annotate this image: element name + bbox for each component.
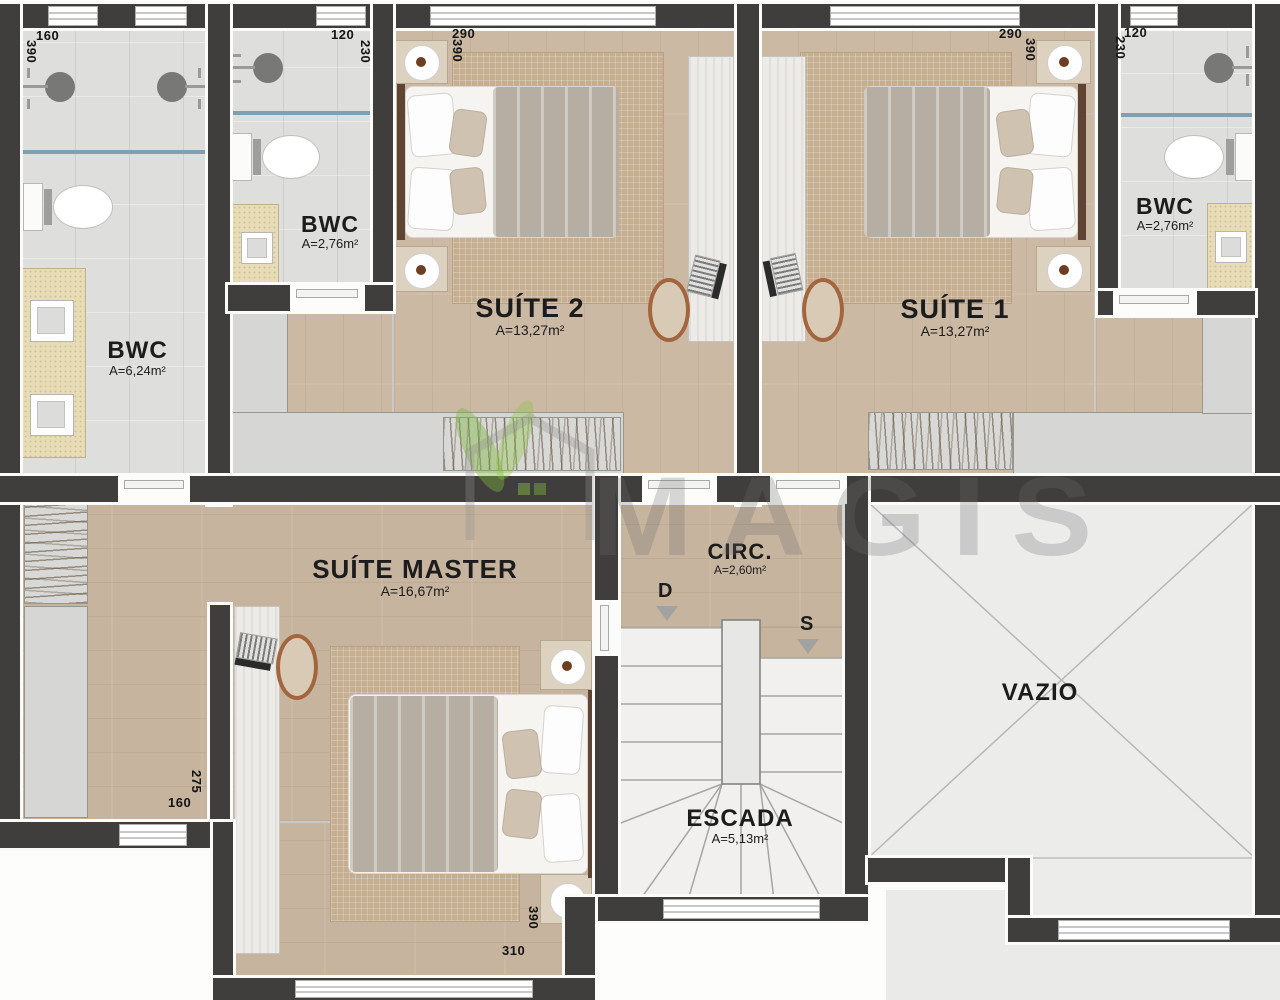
door-bwc-suite2 bbox=[290, 283, 365, 313]
dim-bwc-main-height: 390 bbox=[25, 40, 38, 63]
wall bbox=[0, 822, 233, 848]
window bbox=[1130, 6, 1178, 26]
window bbox=[135, 6, 187, 26]
wardrobe-suite1-side bbox=[1202, 316, 1255, 414]
shower-glass-divider bbox=[231, 111, 373, 115]
sink bbox=[30, 300, 74, 342]
window bbox=[48, 6, 98, 26]
bed-suite2 bbox=[397, 84, 621, 240]
room-name: ESCADA bbox=[660, 806, 820, 831]
dim-suite2-height: 390 bbox=[451, 39, 464, 62]
wall bbox=[213, 822, 233, 1000]
room-area: A=13,27m² bbox=[845, 323, 1065, 339]
window bbox=[119, 824, 187, 846]
lamp-icon bbox=[550, 649, 586, 685]
wall bbox=[737, 4, 759, 504]
wall bbox=[210, 605, 230, 840]
lamp-icon bbox=[404, 253, 440, 289]
shower-glass-divider bbox=[22, 150, 208, 154]
room-label-suite2: SUÍTE 2 A=13,27m² bbox=[420, 294, 640, 338]
room-area: A=6,24m² bbox=[60, 363, 215, 378]
dim-master-width: 310 bbox=[502, 944, 525, 957]
window bbox=[295, 980, 533, 998]
room-label-bwc-suite1: BWC A=2,76m² bbox=[1105, 194, 1225, 233]
wall bbox=[1255, 4, 1280, 942]
window bbox=[316, 6, 366, 26]
wall bbox=[868, 858, 1030, 882]
shower-arm-icon bbox=[1232, 66, 1254, 69]
room-label-bwc-suite2: BWC A=2,76m² bbox=[270, 212, 390, 251]
shower-glass-divider bbox=[1118, 113, 1255, 117]
desk-suite1 bbox=[760, 56, 806, 342]
chair-suite2 bbox=[648, 278, 690, 342]
shower-valve-icon bbox=[231, 54, 241, 57]
bed-suite1 bbox=[862, 84, 1086, 240]
room-name: SUÍTE 2 bbox=[420, 294, 640, 322]
room-area: A=5,13m² bbox=[660, 831, 820, 846]
stairs-down-arrow-icon bbox=[656, 606, 678, 621]
dim-master-nook-width: 160 bbox=[168, 796, 191, 809]
nightstand bbox=[393, 40, 448, 84]
dim-master-nook-height: 275 bbox=[190, 770, 203, 793]
room-area: A=13,27m² bbox=[420, 322, 640, 338]
door-bwc-main bbox=[118, 474, 190, 504]
door-leaf bbox=[600, 605, 609, 651]
wall bbox=[373, 4, 393, 311]
toilet bbox=[23, 183, 115, 233]
toilet bbox=[1164, 133, 1256, 183]
floor-plan: BWC A=6,24m² BWC A=2,76m² SUÍTE 2 A=13,2… bbox=[0, 0, 1280, 1000]
nightstand bbox=[1036, 40, 1091, 84]
room-name: VAZIO bbox=[980, 680, 1100, 705]
sink bbox=[30, 394, 74, 436]
room-label-void: VAZIO bbox=[980, 680, 1100, 705]
room-area: A=2,76m² bbox=[270, 236, 390, 251]
wall bbox=[208, 4, 230, 504]
stairs-down-label: D bbox=[658, 580, 672, 603]
room-name: BWC bbox=[270, 212, 390, 236]
stairs-graphic bbox=[618, 618, 845, 900]
chair-suite-master bbox=[276, 634, 318, 700]
room-area: A=2,76m² bbox=[1105, 218, 1225, 233]
shower-icon bbox=[45, 72, 75, 102]
floor-void-lower bbox=[1030, 858, 1255, 920]
bed-suite-master bbox=[346, 690, 596, 878]
lamp-icon bbox=[404, 45, 440, 81]
shower-valve-icon bbox=[27, 68, 30, 78]
lamp-icon bbox=[1047, 253, 1083, 289]
window bbox=[1058, 920, 1230, 940]
dim-master-height: 390 bbox=[527, 906, 540, 929]
shower-arm-icon bbox=[231, 66, 255, 69]
shower-valve-icon bbox=[198, 99, 201, 109]
room-area: A=16,67m² bbox=[300, 583, 530, 599]
nightstand bbox=[1036, 246, 1091, 292]
chair-suite1 bbox=[802, 278, 844, 342]
window bbox=[663, 899, 820, 919]
dim-bwc-suite2-width: 120 bbox=[331, 28, 354, 41]
door-leaf bbox=[296, 289, 358, 298]
closet-master bbox=[24, 606, 88, 818]
room-name: SUÍTE 1 bbox=[845, 295, 1065, 323]
shower-valve-icon bbox=[27, 99, 30, 109]
dim-suite1-height: 390 bbox=[1024, 38, 1037, 61]
nightstand bbox=[540, 640, 592, 690]
watermark-brand: MAGIS bbox=[592, 452, 1118, 581]
shower-valve-icon bbox=[1246, 74, 1249, 86]
dim-suite1-width: 290 bbox=[999, 27, 1022, 40]
stairs-up-label: S bbox=[800, 613, 813, 636]
door-leaf bbox=[124, 480, 184, 489]
room-label-bwc-main: BWC A=6,24m² bbox=[60, 338, 215, 378]
sink bbox=[1215, 231, 1247, 263]
dim-bwc-suite1-height: 230 bbox=[1114, 36, 1127, 59]
shower-valve-icon bbox=[198, 68, 201, 78]
lamp-icon bbox=[1047, 45, 1083, 81]
room-label-stairs: ESCADA A=5,13m² bbox=[660, 806, 820, 846]
shower-arm-icon bbox=[22, 85, 48, 88]
dim-bwc-main-width: 160 bbox=[36, 29, 59, 42]
shower-arm-icon bbox=[185, 85, 207, 88]
dim-bwc-suite2-height: 230 bbox=[359, 40, 372, 63]
wall bbox=[0, 4, 20, 848]
shower-valve-icon bbox=[231, 80, 241, 83]
window bbox=[430, 6, 656, 26]
stairs-up-arrow-icon bbox=[797, 639, 819, 654]
room-name: BWC bbox=[1105, 194, 1225, 218]
shower-icon bbox=[1204, 53, 1234, 83]
closet-master-clothes bbox=[24, 502, 88, 604]
nightstand bbox=[393, 246, 448, 292]
shower-valve-icon bbox=[1246, 46, 1249, 58]
shower-icon bbox=[157, 72, 187, 102]
room-name: BWC bbox=[60, 338, 215, 363]
shower-icon bbox=[253, 53, 283, 83]
laptop-suite-master bbox=[232, 632, 277, 672]
room-label-suite1: SUÍTE 1 A=13,27m² bbox=[845, 295, 1065, 339]
toilet bbox=[232, 133, 322, 183]
sink bbox=[241, 232, 273, 264]
door-leaf bbox=[1119, 295, 1189, 304]
window bbox=[830, 6, 1020, 26]
